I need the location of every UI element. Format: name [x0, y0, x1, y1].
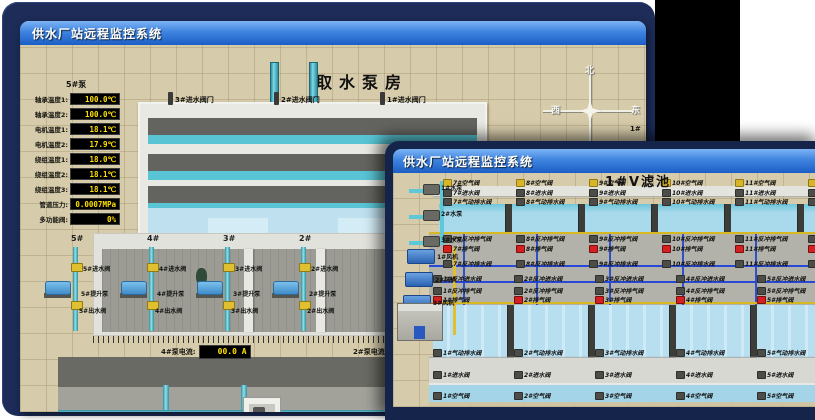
valve: 11#反冲排气阀 — [735, 234, 808, 243]
filter-cell — [512, 204, 579, 233]
inlet-valve-icon[interactable] — [514, 371, 523, 379]
valve-label: 1#进水阀 — [443, 370, 469, 379]
front-window-title: 供水厂站远程监控系统 — [403, 153, 533, 170]
intake-valve: 3#进水阀门 — [168, 92, 274, 105]
valve: 1#气动排水阀 — [433, 348, 514, 357]
bw-inlet-valve-row-bottom: 1#反冲进水阀2#反冲进水阀3#反冲进水阀4#反冲进水阀5#反冲进水阀6#反冲进… — [433, 274, 815, 283]
pump-icon[interactable] — [423, 210, 440, 221]
air-valve-row-bottom: 1#空气阀2#空气阀3#空气阀4#空气阀5#空气阀6#空气阀 — [433, 391, 815, 400]
telemetry-display: 100.0℃ — [70, 108, 120, 120]
valve: 8#反冲排气阀 — [516, 234, 589, 243]
blower-label: 1#风机 — [437, 252, 458, 261]
valve-label: 3#反冲进水阀 — [605, 274, 643, 283]
valve: 5#进水阀 — [757, 370, 815, 379]
telemetry-row: 绕组温度3: 18.1℃ — [24, 182, 144, 196]
exhaust-valve-icon[interactable] — [589, 245, 598, 253]
exhaust-valve-icon[interactable] — [516, 245, 525, 253]
bw-air-valve-icon[interactable] — [516, 235, 525, 243]
pump-icon[interactable] — [423, 184, 440, 195]
pump-icon[interactable] — [45, 281, 71, 295]
telemetry-display: 0% — [70, 213, 120, 225]
inlet-valve-icon[interactable] — [516, 189, 525, 197]
bw-air-valve-row-bottom: 1#反冲排气阀2#反冲排气阀3#反冲排气阀4#反冲排气阀5#反冲排气阀6#反冲排… — [433, 286, 815, 295]
valve-label: 5#气动排水阀 — [767, 348, 805, 357]
intake-valve-label: 3#进水阀门 — [175, 95, 214, 105]
intake-valve: 1#进水阀门 — [380, 92, 486, 105]
valve: 3#空气阀 — [595, 391, 676, 400]
telemetry-label: 绕组温度2: — [24, 169, 68, 179]
bw-drain-valve-icon[interactable] — [589, 260, 598, 268]
valve-label: 5#进水阀 — [767, 370, 793, 379]
valve: 5#排气阀 — [757, 295, 815, 304]
valve-label: 3#空气阀 — [605, 391, 631, 400]
telemetry-label: 电机温度2: — [24, 139, 68, 149]
telemetry-row: 轴承温度1: 100.0℃ — [24, 92, 144, 106]
compass-icon — [579, 100, 601, 122]
pump-label: 2#提升泵 — [309, 289, 336, 298]
telemetry-display: 18.0℃ — [70, 153, 120, 165]
valve-label: 5#排气阀 — [767, 295, 793, 304]
exhaust-valve-row-top: 7#排气阀8#排气阀9#排气阀10#排气阀11#排气阀12#排气阀 — [443, 244, 815, 253]
valve-label: 3#反冲排气阀 — [605, 286, 643, 295]
compass-west: 西 — [551, 103, 560, 116]
inlet-valve-icon[interactable] — [223, 263, 235, 272]
drain-valve-icon[interactable] — [514, 349, 523, 357]
valve-label: 5#反冲排气阀 — [767, 286, 805, 295]
telemetry-row: 绕组温度2: 18.1℃ — [24, 167, 144, 181]
valve-label: 8#排气阀 — [526, 244, 552, 253]
telemetry-row: 电机温度1: 18.1℃ — [24, 122, 144, 136]
outlet-valve-label: 2#出水阀 — [307, 306, 334, 315]
valve: 10#反冲排气阀 — [662, 234, 735, 243]
blower-house — [397, 303, 443, 341]
pump4-current: 4#泵电流: 00.0 A — [161, 345, 251, 359]
pump4-current-display: 00.0 A — [199, 345, 251, 359]
exhaust-valve-icon[interactable] — [514, 296, 523, 304]
air-valve-icon[interactable] — [595, 392, 604, 400]
valve-label: 9#反冲排气阀 — [599, 234, 637, 243]
valve: 3#进水阀 — [595, 370, 676, 379]
valve-label: 3#进水阀 — [605, 370, 631, 379]
valve-label: 8#反冲排气阀 — [526, 234, 564, 243]
telemetry-row: 轴承温度2: 100.0℃ — [24, 107, 144, 121]
valve: 2#进水阀 — [514, 370, 595, 379]
valve: 7#气动排水阀 — [443, 197, 516, 206]
valve-label: 11#空气阀 — [745, 178, 776, 187]
valve-label: 11#反冲排水阀 — [745, 259, 788, 268]
pump-label: 5#提升泵 — [81, 289, 108, 298]
valve: 3#反冲排气阀 — [595, 286, 676, 295]
valve: 8#排气阀 — [516, 244, 589, 253]
valve: 12#进水阀 — [808, 188, 815, 197]
valve-label: 10#气动排水阀 — [672, 197, 715, 206]
inlet-valve-icon[interactable] — [757, 371, 766, 379]
inlet-valve-icon[interactable] — [433, 371, 442, 379]
air-valve-icon[interactable] — [735, 179, 744, 187]
scada-screen: 供水厂站远程监控系统 取水泵房 5#泵 轴承温度1: 100.0℃ 轴承温度2:… — [0, 0, 815, 420]
pump5-telemetry-panel: 5#泵 轴承温度1: 100.0℃ 轴承温度2: 100.0℃ 电机温度1: 1… — [24, 79, 144, 227]
valve: 8#空气阀 — [516, 178, 589, 187]
air-valve-icon[interactable] — [516, 179, 525, 187]
valve: 12#空气阀 — [808, 178, 815, 187]
pump4-current-label: 4#泵电流: — [161, 347, 196, 357]
telemetry-display: 18.1℃ — [70, 183, 120, 195]
valve: 10#反冲排水阀 — [662, 259, 735, 268]
valve: 11#空气阀 — [735, 178, 808, 187]
valve-label: 3#气动排水阀 — [605, 348, 643, 357]
bay-number: 3# — [223, 234, 235, 243]
filter-cell — [585, 204, 652, 233]
inlet-valve-icon[interactable] — [808, 189, 815, 197]
valve: 1#空气阀 — [433, 391, 514, 400]
intake-valve-label: 1#进水阀门 — [387, 95, 426, 105]
pump-icon[interactable] — [121, 281, 147, 295]
filter-cell — [658, 204, 725, 233]
telemetry-row: 电机温度2: 17.9℃ — [24, 137, 144, 151]
ruler-strip — [93, 336, 398, 343]
compass-north: 北 — [585, 63, 594, 76]
drain-valve-icon[interactable] — [735, 198, 744, 206]
blower-icon[interactable] — [405, 272, 433, 287]
air-valve-icon[interactable] — [757, 392, 766, 400]
back-window-titlebar[interactable]: 供水厂站远程监控系统 — [20, 21, 646, 45]
valve-label: 2#空气阀 — [524, 391, 550, 400]
exhaust-valve-icon[interactable] — [735, 245, 744, 253]
valve-label: 10#空气阀 — [672, 178, 703, 187]
outlet-valve-label: 5#出水阀 — [79, 306, 106, 315]
valve-label: 8#气动排水阀 — [526, 197, 564, 206]
drain-valve-icon[interactable] — [808, 198, 815, 206]
outlet-valve-label: 3#出水阀 — [231, 306, 258, 315]
valve: 1#反冲排气阀 — [433, 286, 514, 295]
inlet-valve-icon[interactable] — [595, 371, 604, 379]
air-valve-icon[interactable] — [433, 392, 442, 400]
filter-cell — [731, 204, 798, 233]
bw-air-valve-icon[interactable] — [595, 287, 604, 295]
telemetry-display: 17.9℃ — [70, 138, 120, 150]
inlet-valve-icon[interactable] — [299, 263, 311, 272]
valve-label: 10#排气阀 — [672, 244, 703, 253]
front-window-titlebar[interactable]: 供水厂站远程监控系统 — [393, 149, 815, 173]
pump-label: 2#水泵 — [441, 209, 462, 218]
pump5-panel-header: 5#泵 — [66, 79, 144, 90]
valve-label: 8#反冲排水阀 — [526, 259, 564, 268]
pump-bay: 5# 5#进水阀 5#提升泵 5#出水阀 — [41, 233, 117, 333]
pump-label: 3#提升泵 — [233, 289, 260, 298]
bw-air-valve-icon[interactable] — [808, 235, 815, 243]
bw-drain-valve-icon[interactable] — [662, 260, 671, 268]
intake-valve-icon[interactable] — [380, 92, 385, 105]
valve: 3#气动排水阀 — [595, 348, 676, 357]
valve: 3#排气阀 — [595, 295, 676, 304]
telemetry-label: 轴承温度1: — [24, 94, 68, 104]
valve-label: 10#反冲排气阀 — [672, 234, 715, 243]
bw-air-valve-icon[interactable] — [676, 287, 685, 295]
drain-valve-icon[interactable] — [433, 349, 442, 357]
valve: 11#反冲排水阀 — [735, 259, 808, 268]
valve: 11#排气阀 — [735, 244, 808, 253]
flowmeter[interactable] — [243, 397, 281, 412]
valve: 5#反冲排气阀 — [757, 286, 815, 295]
pump-icon[interactable] — [423, 236, 440, 247]
exhaust-valve-icon[interactable] — [808, 245, 815, 253]
bay-number: 2# — [299, 234, 311, 243]
exhaust-valve-icon[interactable] — [757, 296, 766, 304]
valve: 4#反冲进水阀 — [676, 274, 757, 283]
pump5-panel-rows: 轴承温度1: 100.0℃ 轴承温度2: 100.0℃ 电机温度1: 18.1℃… — [24, 92, 144, 226]
valve-label: 2#气动排水阀 — [524, 348, 562, 357]
valve: 8#进水阀 — [516, 188, 589, 197]
valve: 11#进水阀 — [735, 188, 808, 197]
valve-label: 10#进水阀 — [672, 188, 703, 197]
inlet-valve-icon[interactable] — [589, 189, 598, 197]
bw-air-valve-icon[interactable] — [757, 287, 766, 295]
drain-valve-row-bottom: 1#气动排水阀2#气动排水阀3#气动排水阀4#气动排水阀5#气动排水阀6#气动排… — [433, 348, 815, 357]
telemetry-display: 18.1℃ — [70, 168, 120, 180]
air-valve-icon[interactable] — [514, 392, 523, 400]
valve: 12#反冲排水阀 — [808, 259, 815, 268]
valve: 9#排气阀 — [589, 244, 662, 253]
bw-air-valve-icon[interactable] — [433, 287, 442, 295]
telemetry-label: 轴承温度2: — [24, 109, 68, 119]
blower-label: 2#风机 — [435, 275, 456, 284]
valve-label: 4#空气阀 — [686, 391, 712, 400]
pipe-icon — [163, 385, 169, 411]
inlet-valve-label: 4#进水阀 — [159, 264, 186, 273]
pipe-icon — [225, 247, 230, 331]
valve-label: 3#排气阀 — [605, 295, 631, 304]
valve: 4#气动排水阀 — [676, 348, 757, 357]
pipe-icon — [409, 241, 423, 245]
valve-label: 2#排气阀 — [524, 295, 550, 304]
pipe-icon — [149, 247, 154, 331]
bw-inlet-valve-icon[interactable] — [757, 275, 766, 283]
valve: 4#空气阀 — [676, 391, 757, 400]
valve-label: 9#排气阀 — [599, 244, 625, 253]
telemetry-label: 绕组温度1: — [24, 154, 68, 164]
inlet-valve-icon[interactable] — [147, 263, 159, 272]
valve-label: 9#反冲排水阀 — [599, 259, 637, 268]
exhaust-valve-icon[interactable] — [595, 296, 604, 304]
valve-label: 1#气动排水阀 — [443, 348, 481, 357]
bay-number: 4# — [147, 234, 159, 243]
scene-title-filter: 1#V滤池 — [605, 173, 671, 190]
inlet-valve-icon[interactable] — [735, 189, 744, 197]
filter-cell — [804, 204, 815, 233]
intake-valve: 2#进水阀门 — [274, 92, 380, 105]
drain-valve-icon[interactable] — [757, 349, 766, 357]
valve: 9#反冲排气阀 — [589, 234, 662, 243]
bw-drain-valve-icon[interactable] — [516, 260, 525, 268]
flowmeter-valve-icon — [253, 407, 265, 412]
scene-title-intake: 取水泵房 — [316, 69, 408, 93]
pump-label: 1#水泵 — [441, 183, 462, 192]
valve-label: 1#反冲排气阀 — [443, 286, 481, 295]
valve: 1#进水阀 — [433, 370, 514, 379]
valve-label: 7#气动排水阀 — [453, 197, 491, 206]
valve-label: 9#气动排水阀 — [599, 197, 637, 206]
inlet-valve-icon[interactable] — [676, 371, 685, 379]
pipe-icon — [73, 247, 78, 331]
blower-icon[interactable] — [407, 249, 435, 264]
valve: 12#排气阀 — [808, 244, 815, 253]
valve-label: 4#反冲排气阀 — [686, 286, 724, 295]
valve-label: 8#空气阀 — [526, 178, 552, 187]
bw-air-valve-icon[interactable] — [662, 235, 671, 243]
valve-label: 11#进水阀 — [745, 188, 776, 197]
pump-icon[interactable] — [197, 281, 223, 295]
drain-valve-icon[interactable] — [516, 198, 525, 206]
apron — [429, 402, 815, 406]
telemetry-label: 管道压力: — [24, 199, 68, 209]
inlet-valve-row-bottom: 1#进水阀2#进水阀3#进水阀4#进水阀5#进水阀6#进水阀 — [433, 370, 815, 379]
valve: 10#气动排水阀 — [662, 197, 735, 206]
valve: 5#空气阀 — [757, 391, 815, 400]
telemetry-row: 多功能阀: 0% — [24, 212, 144, 226]
blower-label: 3#风机 — [433, 298, 454, 307]
bw-inlet-valve-icon[interactable] — [514, 275, 523, 283]
valve-label: 5#空气阀 — [767, 391, 793, 400]
drain-valve-icon[interactable] — [676, 349, 685, 357]
bw-inlet-valve-icon[interactable] — [595, 275, 604, 283]
outlet-valve-label: 4#出水阀 — [155, 306, 182, 315]
drain-valve-row-top: 7#气动排水阀8#气动排水阀9#气动排水阀10#气动排水阀11#气动排水阀12#… — [443, 197, 815, 206]
telemetry-row: 管道压力: 0.0007MPa — [24, 197, 144, 211]
drain-valve-icon[interactable] — [662, 198, 671, 206]
telemetry-row: 绕组温度1: 18.0℃ — [24, 152, 144, 166]
bw-inlet-valve-icon[interactable] — [676, 275, 685, 283]
bw-air-valve-icon[interactable] — [514, 287, 523, 295]
valve-label: 1#空气阀 — [443, 391, 469, 400]
drain-valve-icon[interactable] — [595, 349, 604, 357]
valve: 10#空气阀 — [662, 178, 735, 187]
valve: 5#气动排水阀 — [757, 348, 815, 357]
valve: 2#空气阀 — [514, 391, 595, 400]
intake-valve-label: 2#进水阀门 — [281, 95, 320, 105]
valve: 5#反冲进水阀 — [757, 274, 815, 283]
pump-bay: 3# 3#进水阀 3#提升泵 3#出水阀 — [193, 233, 269, 333]
door — [414, 326, 425, 339]
air-valve-icon[interactable] — [676, 392, 685, 400]
intake-valve-icon[interactable] — [274, 92, 279, 105]
exhaust-valve-row-bottom: 1#排气阀2#排气阀3#排气阀4#排气阀5#排气阀6#排气阀 — [433, 295, 815, 304]
valve: 12#反冲排气阀 — [808, 234, 815, 243]
valve: 8#反冲排水阀 — [516, 259, 589, 268]
valve: 8#气动排水阀 — [516, 197, 589, 206]
valve-label: 11#气动排水阀 — [745, 197, 788, 206]
valve: 10#排气阀 — [662, 244, 735, 253]
valve: 2#气动排水阀 — [514, 348, 595, 357]
pump-label: 3#水泵 — [441, 235, 462, 244]
valve-label: 2#反冲进水阀 — [524, 274, 562, 283]
window-v-filter: 供水厂站远程监控系统 1#V滤池 7#空气阀8#空气阀9#空气阀10#空气阀11… — [385, 141, 815, 420]
bw-drain-valve-icon[interactable] — [735, 260, 744, 268]
valve-label: 4#反冲进水阀 — [686, 274, 724, 283]
pipe-icon — [409, 215, 423, 219]
back-window-title: 供水厂站远程监控系统 — [32, 25, 162, 42]
valve: 9#反冲排水阀 — [589, 259, 662, 268]
inlet-valve-label: 2#进水阀 — [311, 264, 338, 273]
valve: 3#反冲进水阀 — [595, 274, 676, 283]
valve-label: 10#反冲排水阀 — [672, 259, 715, 268]
pump-icon[interactable] — [273, 281, 299, 295]
bw-drain-valve-row-top: 7#反冲排水阀8#反冲排水阀9#反冲排水阀10#反冲排水阀11#反冲排水阀12#… — [443, 259, 815, 268]
valve: 9#气动排水阀 — [589, 197, 662, 206]
telemetry-label: 电机温度1: — [24, 124, 68, 134]
exhaust-valve-icon[interactable] — [676, 296, 685, 304]
air-valve-icon[interactable] — [589, 179, 598, 187]
inlet-valve-icon[interactable] — [71, 263, 83, 272]
valve-label: 4#进水阀 — [686, 370, 712, 379]
valve-label: 4#排气阀 — [686, 295, 712, 304]
pump-bays: 5# 5#进水阀 5#提升泵 5#出水阀 4# 4#进水阀 4# — [41, 233, 345, 333]
drain-valve-icon[interactable] — [443, 198, 452, 206]
top-filter-cells — [439, 204, 815, 233]
pump2-current-label: 2#泵电流: — [353, 347, 388, 357]
air-valve-icon[interactable] — [808, 179, 815, 187]
valve: 2#反冲排气阀 — [514, 286, 595, 295]
valve-label: 5#反冲进水阀 — [767, 274, 805, 283]
pump-bay: 2# 2#进水阀 2#提升泵 2#出水阀 — [269, 233, 345, 333]
valve-label: 7#反冲排水阀 — [453, 259, 491, 268]
telemetry-display: 100.0℃ — [70, 93, 120, 105]
valve-label: 11#排气阀 — [745, 244, 776, 253]
bw-air-valve-icon[interactable] — [589, 235, 598, 243]
front-window-content: 1#V滤池 7#空气阀8#空气阀9#空气阀10#空气阀11#空气阀12#空气阀 … — [393, 173, 815, 407]
inlet-valve-label: 3#进水阀 — [235, 264, 262, 273]
exhaust-valve-icon[interactable] — [662, 245, 671, 253]
intake-valve-row: 3#进水阀门 2#进水阀门 1#进水阀门 — [168, 92, 486, 105]
valve: 4#进水阀 — [676, 370, 757, 379]
inlet-valve-label: 5#进水阀 — [83, 264, 110, 273]
valve-label: 11#反冲排气阀 — [745, 234, 788, 243]
telemetry-display: 18.1℃ — [70, 123, 120, 135]
valve-label: 4#气动排水阀 — [686, 348, 724, 357]
valve: 10#进水阀 — [662, 188, 735, 197]
pump-bay: 4# 4#进水阀 4#提升泵 4#出水阀 — [117, 233, 193, 333]
valve: 2#排气阀 — [514, 295, 595, 304]
pump-label: 4#提升泵 — [157, 289, 184, 298]
intake-valve-icon[interactable] — [168, 92, 173, 105]
side-panel-header: 1# — [630, 125, 641, 133]
valve: 4#反冲排气阀 — [676, 286, 757, 295]
compass-east: 东 — [631, 103, 640, 116]
telemetry-display: 0.0007MPa — [70, 198, 120, 210]
valve: 4#排气阀 — [676, 295, 757, 304]
bw-air-valve-row-top: 7#反冲排气阀8#反冲排气阀9#反冲排气阀10#反冲排气阀11#反冲排气阀12#… — [443, 234, 815, 243]
bw-drain-valve-icon[interactable] — [808, 260, 815, 268]
bay-number: 5# — [71, 234, 83, 243]
valve-label: 2#进水阀 — [524, 370, 550, 379]
black-backdrop — [655, 0, 740, 146]
valve: 12#气动排水阀 — [808, 197, 815, 206]
valve: 11#气动排水阀 — [735, 197, 808, 206]
pipe-icon — [409, 189, 423, 193]
drain-valve-icon[interactable] — [589, 198, 598, 206]
valve: 2#反冲进水阀 — [514, 274, 595, 283]
telemetry-label: 绕组温度3: — [24, 184, 68, 194]
telemetry-label: 多功能阀: — [24, 214, 68, 224]
pipe-icon — [301, 247, 306, 331]
valve-label: 2#反冲排气阀 — [524, 286, 562, 295]
valve-label: 8#进水阀 — [526, 188, 552, 197]
bw-air-valve-icon[interactable] — [735, 235, 744, 243]
